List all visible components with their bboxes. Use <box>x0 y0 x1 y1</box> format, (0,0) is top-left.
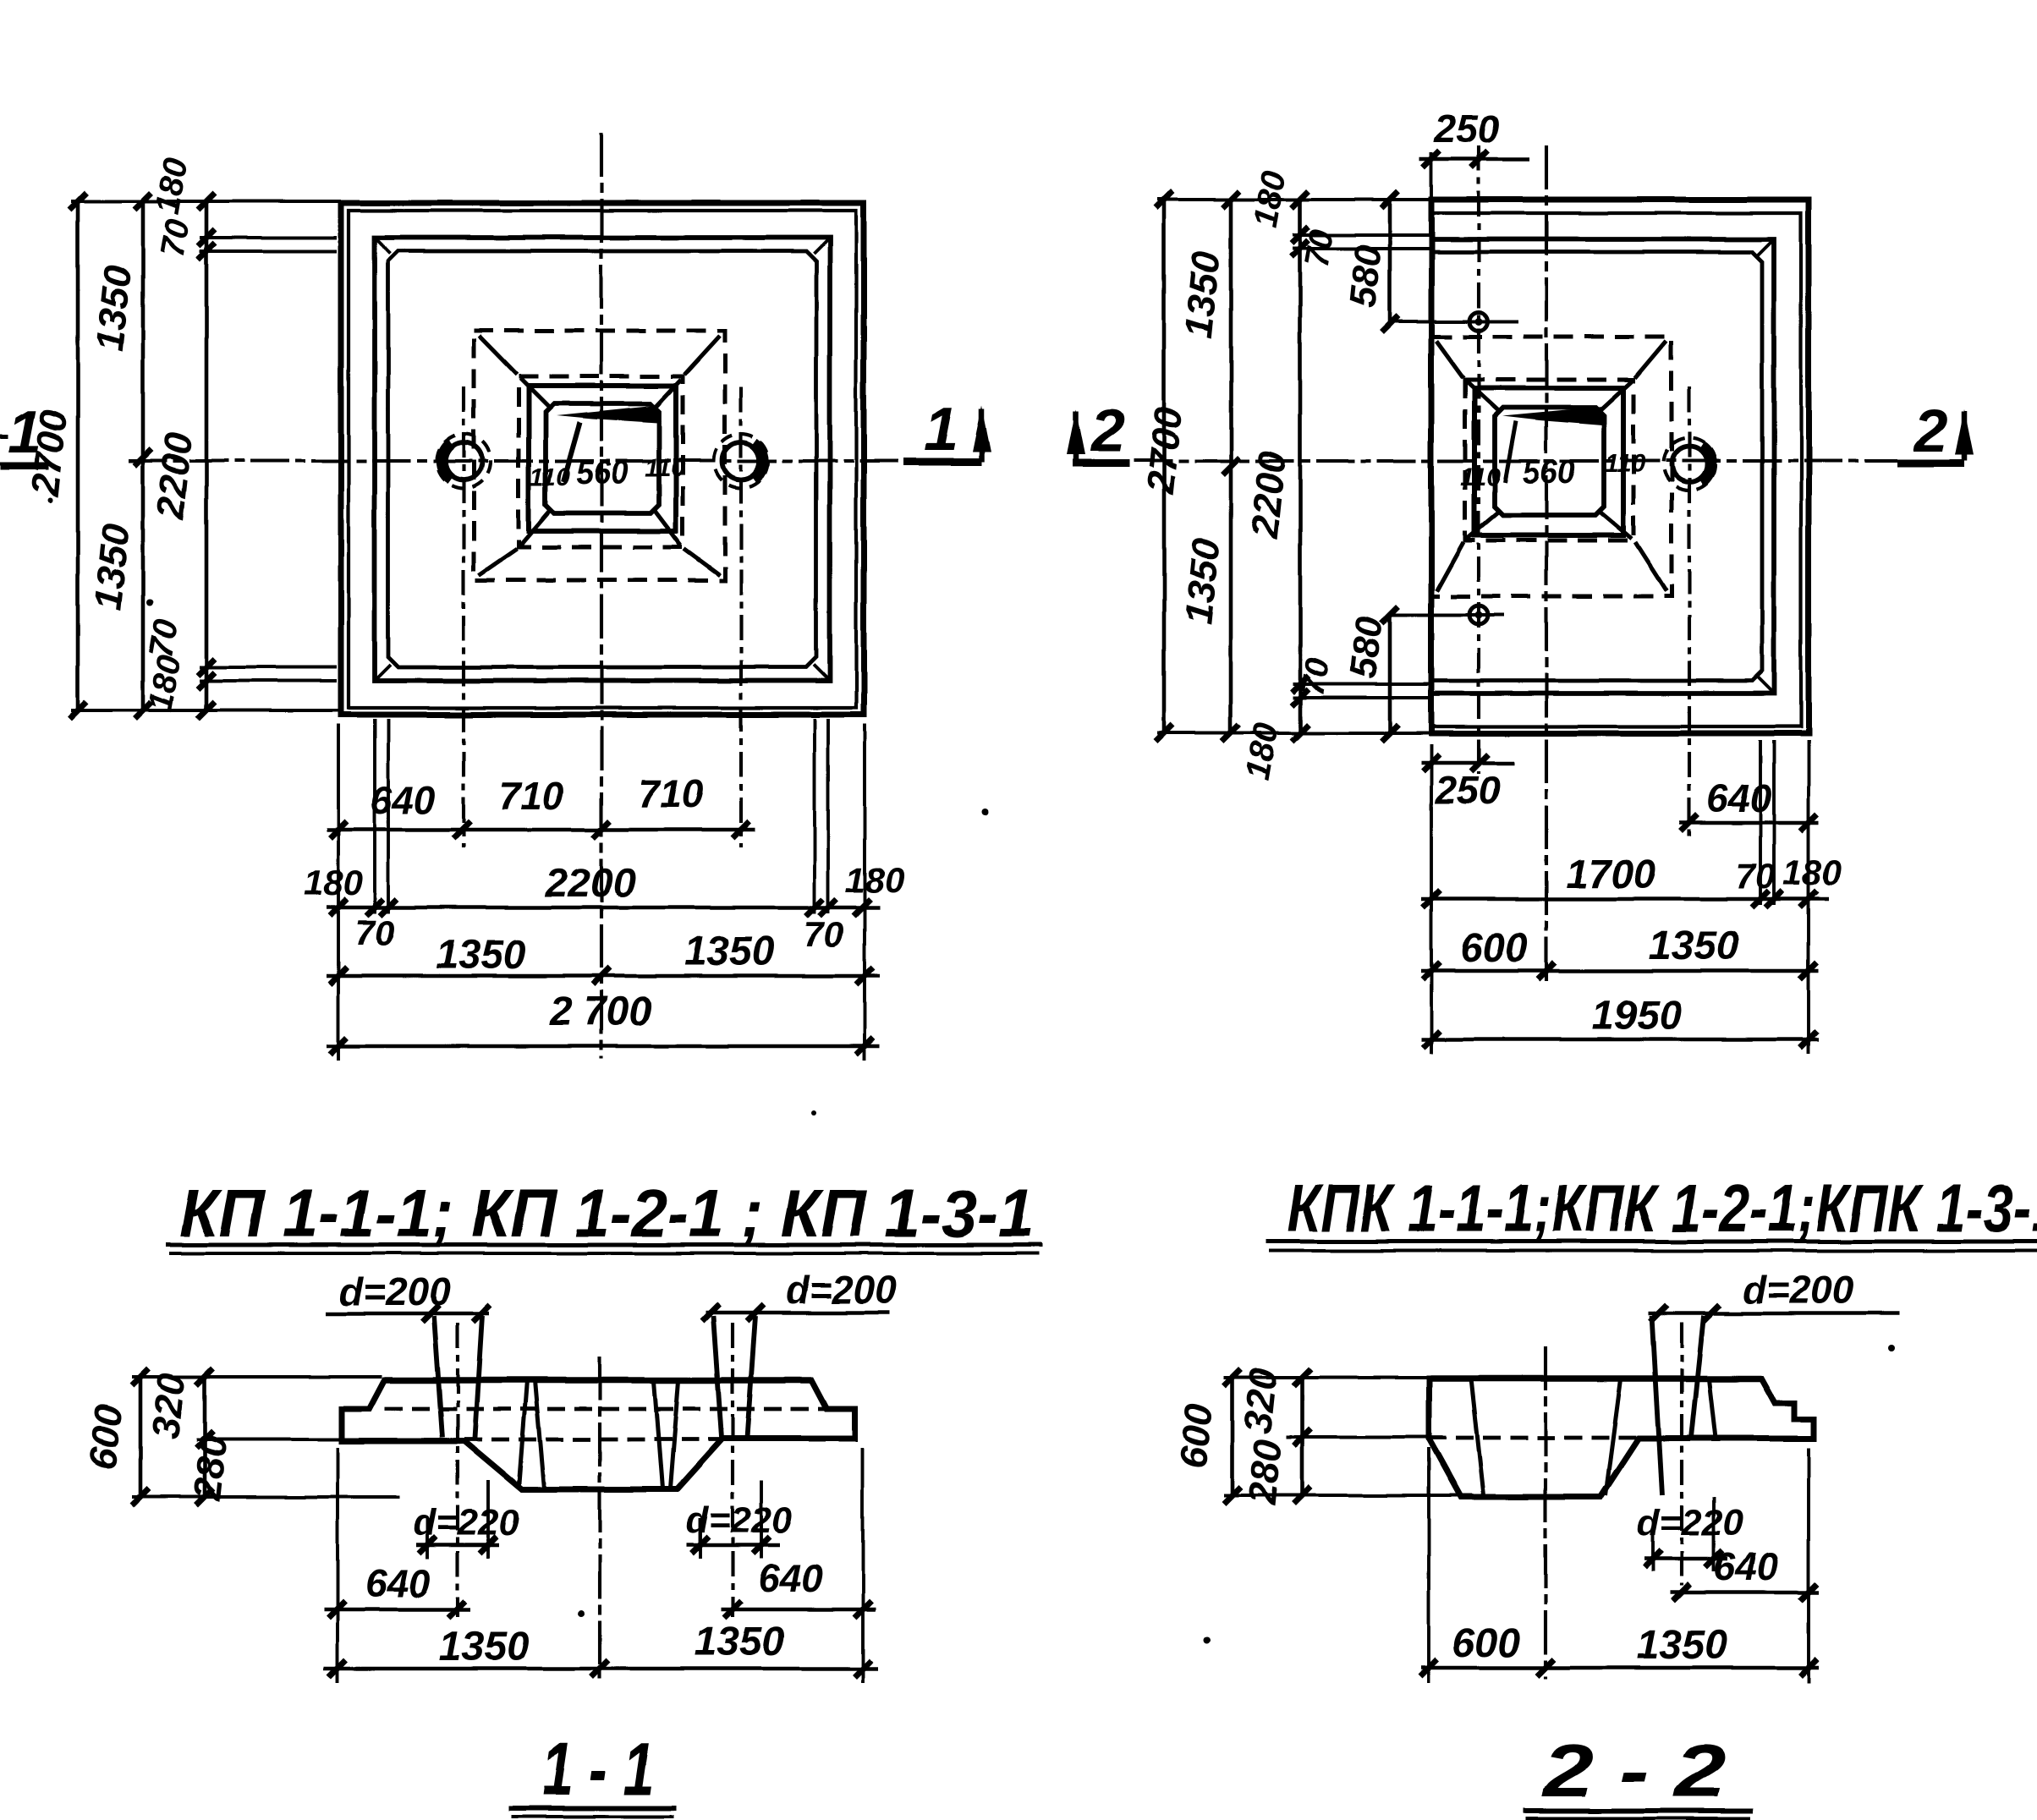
svg-text:70: 70 <box>804 914 844 954</box>
svg-text:1700: 1700 <box>1566 852 1656 897</box>
svg-text:250: 250 <box>1435 768 1501 812</box>
svg-text:580: 580 <box>1342 614 1390 681</box>
svg-text:1: 1 <box>8 398 41 466</box>
svg-text:2200: 2200 <box>148 430 201 522</box>
svg-text:1350: 1350 <box>436 933 526 978</box>
svg-text:180: 180 <box>1239 721 1286 782</box>
svg-text:70: 70 <box>355 913 395 952</box>
svg-text:d=200: d=200 <box>785 1268 897 1312</box>
svg-text:710: 710 <box>499 774 564 818</box>
svg-text:1350: 1350 <box>85 521 138 612</box>
svg-text:70: 70 <box>142 617 185 660</box>
svg-text:710: 710 <box>639 771 704 815</box>
svg-text:70: 70 <box>1294 655 1337 699</box>
svg-text:d=200: d=200 <box>339 1269 451 1313</box>
svg-text:70: 70 <box>154 217 197 260</box>
svg-text:d=200: d=200 <box>1743 1268 1854 1312</box>
svg-text:110: 110 <box>530 463 570 491</box>
svg-text:110: 110 <box>645 454 685 482</box>
svg-text:1350: 1350 <box>439 1625 530 1669</box>
svg-text:1350: 1350 <box>1637 1623 1727 1668</box>
svg-text:180: 180 <box>142 652 189 714</box>
svg-text:70: 70 <box>1736 856 1776 896</box>
svg-text:КПК 1-1-1;КПК 1-2-1;КПК 1-3-1: КПК 1-1-1;КПК 1-2-1;КПК 1-3-1 <box>1288 1170 2037 1246</box>
svg-text:d=220: d=220 <box>686 1499 793 1541</box>
svg-text:180: 180 <box>1247 168 1293 230</box>
svg-text:600: 600 <box>1170 1401 1221 1471</box>
svg-text:1950: 1950 <box>1592 994 1683 1039</box>
svg-text:250: 250 <box>1434 107 1500 151</box>
svg-text:1350: 1350 <box>1649 924 1739 968</box>
svg-text:110: 110 <box>1460 463 1501 491</box>
svg-text:d=220: d=220 <box>413 1502 520 1543</box>
svg-text:2: 2 <box>1090 397 1125 465</box>
svg-text:180: 180 <box>845 860 904 900</box>
svg-text:КП 1-1-1; КП 1-2-1 ; КП 1-3-1: КП 1-1-1; КП 1-2-1 ; КП 1-3-1 <box>179 1176 1034 1251</box>
svg-text:280: 280 <box>184 1433 235 1503</box>
svg-text:1350: 1350 <box>695 1620 785 1664</box>
svg-text:1: 1 <box>924 396 958 463</box>
svg-text:1350: 1350 <box>684 929 775 974</box>
svg-text:640: 640 <box>371 778 436 822</box>
svg-text:1350: 1350 <box>1176 249 1228 340</box>
svg-text:600: 600 <box>1452 1621 1520 1666</box>
svg-text:110: 110 <box>1605 450 1645 478</box>
svg-text:1350: 1350 <box>1176 535 1228 627</box>
svg-text:1350: 1350 <box>87 262 140 354</box>
svg-text:580: 580 <box>1342 243 1389 310</box>
svg-text:180: 180 <box>304 863 363 902</box>
svg-text:180: 180 <box>149 155 195 217</box>
svg-text:560: 560 <box>1523 453 1575 491</box>
svg-text:640: 640 <box>1714 1544 1779 1588</box>
svg-text:320: 320 <box>143 1371 194 1440</box>
svg-text:2 - 2: 2 - 2 <box>1541 1729 1727 1812</box>
svg-text:2200: 2200 <box>1242 448 1295 540</box>
svg-text:640: 640 <box>365 1561 431 1605</box>
svg-text:640: 640 <box>758 1556 823 1600</box>
svg-text:1 - 1: 1 - 1 <box>542 1727 655 1811</box>
svg-text:640: 640 <box>1707 776 1772 820</box>
svg-text:180: 180 <box>1782 852 1842 892</box>
svg-text:2: 2 <box>1913 397 1948 465</box>
svg-text:2200: 2200 <box>545 861 636 906</box>
svg-text:2 700: 2 700 <box>549 989 651 1034</box>
svg-text:70: 70 <box>1299 227 1342 270</box>
svg-text:600: 600 <box>80 1402 130 1472</box>
svg-text:2700: 2700 <box>1138 404 1191 496</box>
svg-text:600: 600 <box>1460 926 1528 971</box>
